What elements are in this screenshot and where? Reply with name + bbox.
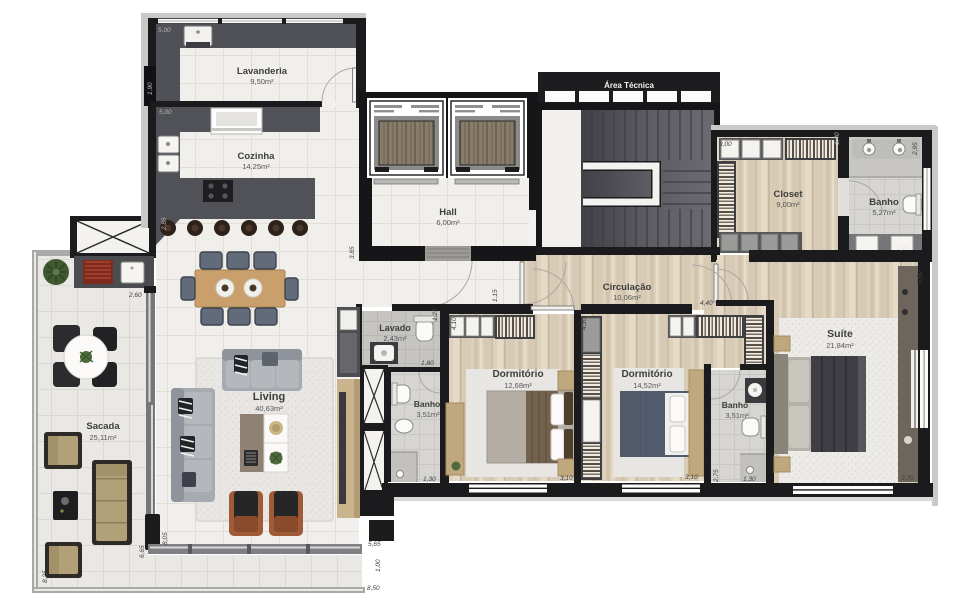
- svg-text:Suíte: Suíte: [827, 328, 853, 340]
- svg-text:5,00: 5,00: [159, 109, 172, 116]
- svg-text:1,00: 1,00: [375, 559, 382, 572]
- svg-text:1,25: 1,25: [432, 308, 439, 321]
- svg-text:1,85: 1,85: [897, 245, 910, 252]
- svg-text:2,43m²: 2,43m²: [383, 334, 407, 343]
- svg-text:Cozinha: Cozinha: [238, 151, 276, 162]
- svg-text:21,84m²: 21,84m²: [826, 341, 854, 350]
- svg-text:4,40: 4,40: [700, 300, 713, 307]
- svg-text:1,90: 1,90: [147, 82, 154, 95]
- svg-text:1,40: 1,40: [834, 132, 841, 145]
- svg-text:8,25: 8,25: [42, 570, 49, 583]
- svg-text:Banho: Banho: [869, 197, 899, 208]
- svg-text:Área Técnica: Área Técnica: [604, 81, 654, 90]
- svg-text:5,50: 5,50: [917, 271, 924, 284]
- svg-text:3,85: 3,85: [349, 246, 356, 259]
- svg-text:3,10: 3,10: [685, 474, 698, 481]
- svg-text:4,10: 4,10: [581, 317, 588, 330]
- svg-text:Banho: Banho: [722, 400, 748, 410]
- svg-text:5,27m²: 5,27m²: [872, 208, 896, 217]
- svg-text:1,30: 1,30: [743, 476, 756, 483]
- svg-text:9,00m²: 9,00m²: [776, 200, 800, 209]
- svg-text:Banho: Banho: [414, 399, 440, 409]
- svg-text:5,65: 5,65: [368, 541, 381, 548]
- svg-text:3,70: 3,70: [901, 475, 914, 482]
- svg-text:5,00: 5,00: [158, 27, 171, 34]
- svg-text:3,10: 3,10: [560, 475, 573, 482]
- svg-text:1,80: 1,80: [421, 360, 434, 367]
- svg-text:14,52m²: 14,52m²: [633, 381, 661, 390]
- svg-text:1,15: 1,15: [492, 289, 499, 302]
- svg-text:2,60: 2,60: [128, 292, 142, 299]
- svg-text:6,65: 6,65: [139, 545, 146, 558]
- svg-text:Circulação: Circulação: [603, 282, 652, 293]
- svg-text:Closet: Closet: [773, 189, 803, 200]
- svg-text:9,50m²: 9,50m²: [250, 77, 274, 86]
- svg-text:6,00m²: 6,00m²: [436, 218, 460, 227]
- svg-text:Dormitório: Dormitório: [621, 369, 672, 380]
- svg-text:40,63m²: 40,63m²: [255, 404, 283, 413]
- svg-text:2,85: 2,85: [161, 217, 168, 231]
- svg-text:8,05: 8,05: [162, 532, 169, 545]
- svg-text:3,51m²: 3,51m²: [725, 411, 749, 420]
- svg-text:4,10: 4,10: [451, 317, 458, 330]
- svg-text:12,68m²: 12,68m²: [504, 381, 532, 390]
- svg-text:2,75: 2,75: [713, 469, 720, 483]
- svg-text:2,95: 2,95: [912, 142, 919, 156]
- svg-text:Lavanderia: Lavanderia: [237, 66, 288, 77]
- svg-text:Living: Living: [253, 391, 285, 403]
- svg-text:14,25m²: 14,25m²: [242, 162, 270, 171]
- svg-text:10,06m²: 10,06m²: [613, 293, 641, 302]
- svg-text:Hall: Hall: [439, 207, 456, 218]
- svg-text:8,50: 8,50: [367, 585, 380, 592]
- svg-text:3,51m²: 3,51m²: [416, 410, 440, 419]
- svg-text:1,30: 1,30: [423, 476, 436, 483]
- svg-text:Sacada: Sacada: [86, 421, 120, 432]
- svg-text:25,11m²: 25,11m²: [90, 433, 117, 442]
- svg-text:Lavado: Lavado: [379, 323, 411, 333]
- svg-text:3,00: 3,00: [719, 141, 732, 148]
- svg-text:Dormitório: Dormitório: [492, 369, 543, 380]
